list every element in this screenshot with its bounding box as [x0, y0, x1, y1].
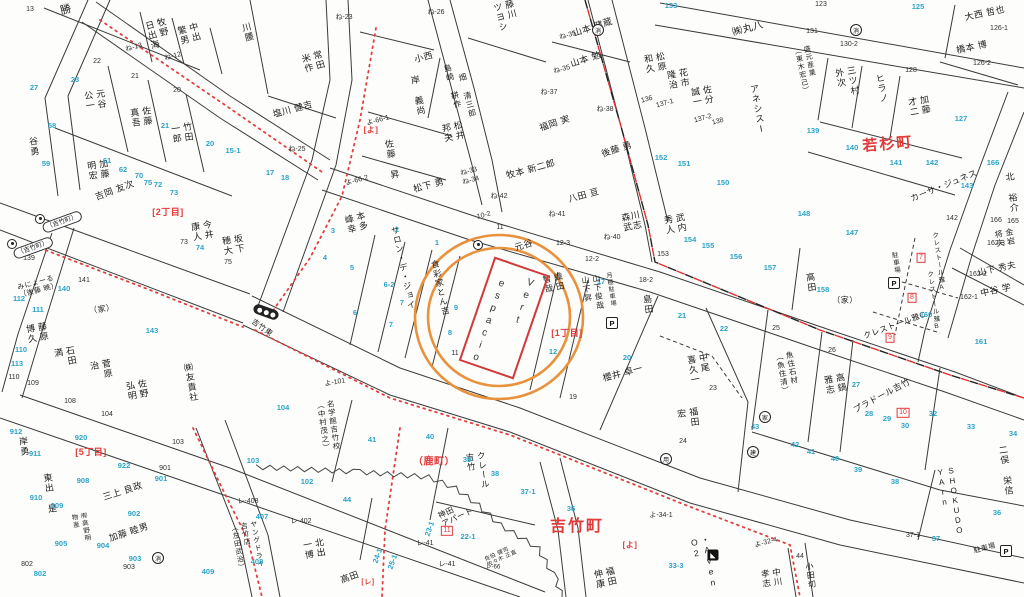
- parcel-number: 922: [118, 462, 131, 470]
- occupant-name: 中川孝志: [758, 567, 783, 589]
- parcel-line: [0, 418, 520, 597]
- parcel-number: 902: [128, 510, 141, 518]
- parcel-number: 911: [29, 450, 41, 458]
- name-column: 藤原: [35, 321, 48, 342]
- occupant-name: 今井康人: [188, 219, 215, 243]
- parcel-number: 903: [129, 555, 142, 563]
- parcel-number: 27: [30, 84, 38, 92]
- parcel-number: 24: [679, 438, 687, 446]
- name-column: 佐野: [135, 378, 148, 399]
- parcel-number: 72: [154, 181, 162, 189]
- parcel-number: 155: [702, 242, 715, 250]
- parcel-number: 908: [77, 477, 90, 485]
- parcel-line: [360, 498, 372, 560]
- parcel-number: 904: [97, 542, 110, 550]
- parcel-number: 22: [93, 58, 101, 66]
- parcel-number: 22: [720, 325, 728, 333]
- parcel-number: 44: [343, 496, 351, 504]
- name-column: 石田: [63, 345, 76, 366]
- parcel-number: 73: [180, 239, 188, 247]
- parcel-number: 33: [967, 423, 975, 431]
- name-column: 菅原: [99, 358, 112, 379]
- parcel-number: 141: [78, 277, 90, 285]
- district-label: [2丁目]: [152, 208, 184, 218]
- landmark-icon: ◣: [708, 550, 719, 561]
- boundary-dotted-line: [272, 28, 376, 312]
- parking-icon: P: [1000, 545, 1012, 557]
- parcel-number: 126-1: [990, 25, 1008, 33]
- red-number-box: 8: [908, 293, 917, 303]
- parcel-line: [350, 235, 375, 345]
- name-column: 松原: [653, 51, 666, 72]
- parcel-number: 166: [987, 159, 1000, 167]
- parcel-number: 110: [8, 374, 19, 382]
- parcel-line: [792, 248, 800, 310]
- parcel-number: 29: [883, 415, 891, 423]
- occupant-name: 藤原博久: [23, 321, 50, 345]
- occupant-name: （家）: [832, 297, 858, 306]
- boundary-dotted-line: [40, 248, 243, 327]
- parking-icon: P: [888, 277, 900, 289]
- parcel-number: 111: [32, 306, 44, 314]
- parcel-number: 75: [224, 259, 232, 267]
- parcel-number: ね-26: [427, 9, 444, 17]
- district-label: [よ]: [623, 542, 638, 551]
- parcel-number: 130-2: [840, 41, 858, 49]
- parcel-line: [210, 28, 222, 74]
- parcel-number: 142: [946, 215, 958, 223]
- parcel-number: 158: [817, 286, 830, 294]
- district-label: [5丁目]: [75, 448, 107, 458]
- name-column: 坂下: [231, 233, 244, 254]
- occupant-name: 北出一博: [300, 537, 327, 561]
- name-column: 元谷: [94, 89, 107, 110]
- parcel-number: 7: [400, 299, 404, 307]
- occupant-name: 菅原治: [87, 358, 114, 382]
- parcel-number: ね-38: [596, 106, 613, 114]
- circled-kanji-icon: 家: [759, 411, 771, 423]
- name-column: 北出: [312, 537, 325, 558]
- map-symbol-icon: [35, 214, 45, 224]
- parcel-line: [706, 308, 748, 492]
- parcel-line: [468, 38, 546, 62]
- name-column: 岸勇: [17, 436, 30, 457]
- name-column: 公一: [82, 90, 95, 111]
- parcel-number: 5: [350, 264, 354, 272]
- parcel-line: [840, 340, 853, 452]
- parcel-number: 1: [435, 239, 439, 247]
- parcel-number: 27: [852, 381, 860, 389]
- parcel-number: 44: [796, 553, 804, 561]
- parcel-number: 17: [266, 169, 274, 177]
- parcel-number: 147: [846, 229, 859, 237]
- circled-kanji-icon: 建: [747, 446, 759, 458]
- name-column: 弘明: [124, 380, 137, 401]
- parcel-number: 920: [75, 434, 88, 442]
- parcel-number: よ-34-1: [649, 512, 672, 520]
- parcel-number: 11: [451, 350, 458, 358]
- name-column: 高鍋: [833, 372, 846, 393]
- parcel-line: [362, 156, 446, 180]
- parcel-number: 19: [569, 394, 577, 402]
- circled-kanji-icon: 消: [850, 24, 862, 36]
- parcel-number: 161: [975, 338, 988, 346]
- parcel-number: 11: [496, 224, 503, 232]
- name-column: 佐分: [700, 84, 713, 105]
- occupant-name: 佐野弘明: [123, 378, 150, 402]
- parcel-number: 23: [709, 385, 717, 393]
- name-column: 孝志: [759, 569, 771, 589]
- parcel-number: 43: [751, 423, 759, 431]
- parcel-number: 62: [119, 166, 127, 174]
- parcel-number: 12: [549, 348, 557, 356]
- parcel-number: レ-66: [486, 565, 501, 572]
- name-column: 明宏: [85, 160, 98, 181]
- parcel-number: 113: [11, 360, 23, 368]
- parcel-number: 408: [251, 558, 264, 566]
- parcel-line: [890, 76, 900, 138]
- parcel-number: 12-2: [585, 256, 599, 264]
- circled-kanji-icon: 消: [592, 24, 604, 36]
- parcel-number: 910: [30, 494, 43, 502]
- name-column: 真吾: [128, 107, 141, 128]
- name-column: 加藤: [917, 94, 930, 115]
- parcel-number: 901: [155, 475, 168, 483]
- parcel-number: 13: [26, 6, 34, 14]
- name-column: 駐車場: [890, 251, 900, 274]
- parcel-number: 901: [159, 465, 171, 473]
- parking-icon: P: [606, 317, 618, 329]
- parcel-number: 6-2: [384, 281, 395, 289]
- parcel-number: 59: [42, 160, 50, 168]
- map-symbol-icon: [7, 239, 17, 249]
- parcel-number: 125: [912, 3, 925, 11]
- parcel-number: 166: [990, 217, 1002, 225]
- parcel-number: 23: [71, 76, 79, 84]
- parcel-number: 802: [34, 570, 47, 578]
- parcel-number: 73: [170, 189, 178, 197]
- parcel-number: 162-2: [969, 271, 987, 279]
- parcel-number: 104: [277, 404, 290, 412]
- parcel-line: [918, 470, 935, 540]
- parcel-number: 165: [1007, 218, 1019, 226]
- parcel-number: 21: [131, 73, 139, 81]
- red-number-box: 10: [897, 408, 910, 418]
- occupant-name: 元谷公一: [81, 88, 107, 111]
- name-column: 谷勇: [27, 136, 40, 157]
- parcel-number: 912: [10, 428, 23, 436]
- parcel-number: 110: [15, 346, 27, 354]
- name-column: 中川: [771, 567, 783, 587]
- parcel-number: 2: [395, 226, 399, 234]
- parcel-line: [612, 0, 668, 222]
- name-column: 宏: [675, 408, 686, 419]
- name-column: 物産: [69, 513, 79, 529]
- parcel-number: 38: [491, 470, 499, 478]
- parcel-number: 20: [173, 87, 181, 95]
- occupant-name: 加藤才二: [905, 94, 932, 118]
- circled-kanji-icon: 用: [660, 453, 672, 465]
- district-label: 吉竹町: [550, 518, 604, 536]
- parcel-number: 28: [865, 410, 873, 418]
- name-column: 才二: [906, 96, 919, 117]
- parcel-number: レ-402: [290, 518, 311, 526]
- parcel-number: 74: [196, 244, 204, 252]
- parcel-number: 802: [21, 561, 33, 569]
- red-number-box: 7: [917, 253, 926, 263]
- name-column: 満: [52, 347, 63, 359]
- circled-kanji-icon: 消: [152, 552, 164, 564]
- name-column: 秀人: [662, 214, 675, 235]
- parcel-number: 26: [828, 347, 836, 355]
- name-column: 一博: [301, 539, 314, 560]
- parcel-number: 18: [281, 174, 289, 182]
- red-number-box: 11: [441, 526, 453, 536]
- occupant-name: 高鍋雅志: [821, 372, 848, 396]
- parcel-number: 18-2: [639, 277, 653, 285]
- parcel-line: [430, 428, 448, 520]
- parcel-number: 909: [51, 502, 64, 510]
- parcel-number: 21: [678, 312, 686, 320]
- occupant-name: 森川武志: [621, 210, 644, 233]
- parcel-line: [108, 66, 128, 152]
- parcel-number: 154: [684, 236, 697, 244]
- parcel-number: 40: [426, 433, 434, 441]
- name-column: 武内: [673, 212, 686, 233]
- parcel-number: 70: [135, 172, 143, 180]
- parcel-number: 36: [993, 509, 1001, 517]
- parcel-number: 36: [567, 505, 575, 513]
- parcel-number: 133: [665, 2, 678, 10]
- occupant-name: 武内秀人: [661, 212, 688, 236]
- parcel-number: 139: [807, 127, 820, 135]
- parcel-number: ね-23: [335, 14, 352, 22]
- parcel-number: ね-42: [490, 193, 507, 201]
- parcel-number: 37: [932, 535, 940, 543]
- parcel-number: 141: [890, 159, 903, 167]
- parcel-number: 75: [144, 179, 152, 187]
- district-label: （鹿町）: [413, 457, 455, 468]
- parcel-number: 148: [798, 210, 811, 218]
- name-column: 福田: [687, 407, 700, 428]
- name-column: 竹田: [181, 122, 194, 143]
- parcel-number: レ-41: [438, 561, 455, 569]
- parcel-number: 131: [806, 28, 818, 36]
- name-column: 隆治: [665, 69, 678, 90]
- parcel-number: 34: [1009, 430, 1017, 438]
- name-column: 博久: [24, 323, 37, 344]
- occupant-name: 福田宏: [674, 406, 700, 429]
- building-name-column: Vert: [510, 276, 537, 329]
- parcel-number: 33-3: [668, 562, 683, 570]
- parcel-number: 152: [655, 154, 668, 162]
- parcel-number: ね-41: [548, 211, 565, 219]
- district-label: [1丁目]: [551, 329, 583, 339]
- parcel-number: ね-37: [540, 89, 557, 97]
- name-column: 今井: [200, 219, 213, 240]
- parcel-number: 140: [846, 144, 859, 152]
- parcel-number: 151: [678, 160, 691, 168]
- parcel-number: 160: [920, 311, 933, 319]
- occupant-name: 佐分誠一: [688, 84, 715, 108]
- parcel-number: 126-2: [973, 60, 991, 68]
- occupant-name: 佐藤真吾: [127, 105, 153, 128]
- occupant-name: 坂下穂大: [219, 233, 246, 257]
- parcel-line: [225, 420, 280, 597]
- parcel-number: 108: [64, 398, 76, 406]
- parcel-number: 143: [146, 327, 159, 335]
- parcel-number: 109: [27, 380, 39, 388]
- district-label: [レ]: [361, 579, 374, 587]
- parcel-number: 32: [929, 410, 937, 418]
- boundary-dotted-line: [382, 428, 400, 597]
- name-column: 雅志: [822, 374, 835, 395]
- parcel-number: 903: [123, 564, 135, 572]
- parcel-number: 162-3: [987, 240, 1005, 248]
- parcel-number: 20: [623, 354, 631, 362]
- name-column: 一郎: [169, 123, 182, 144]
- name-column: 金岩: [1003, 227, 1015, 246]
- parcel-number: 157: [764, 264, 777, 272]
- parcel-number: 61: [103, 157, 111, 165]
- parcel-number: 40: [831, 455, 839, 463]
- name-column: 高田: [804, 272, 817, 293]
- parcel-number: 25: [772, 325, 780, 333]
- parcel-line: [588, 0, 652, 262]
- parcel-number: 103: [172, 439, 184, 447]
- parcel-number: 6: [353, 309, 357, 317]
- parcel-number: 407: [256, 513, 269, 521]
- parcel-number: 140: [58, 285, 71, 293]
- parcel-number: 37-1: [520, 488, 535, 496]
- parcel-number: 103: [247, 457, 260, 465]
- parcel-number: 123: [815, 1, 827, 9]
- parcel-number: 42: [791, 441, 799, 449]
- parcel-line: [20, 395, 545, 592]
- occupant-name: 中尾喜久一: [684, 352, 713, 386]
- occupant-name: 三ツ村外次: [832, 65, 861, 99]
- parcel-number: レ-41: [416, 540, 433, 548]
- name-column: 花市: [676, 67, 689, 88]
- parcel-number: 12-3: [556, 240, 570, 248]
- red-number-box: 9: [886, 333, 895, 343]
- parcel-number: 15-1: [225, 147, 240, 155]
- parcel-line: [945, 5, 955, 58]
- name-column: 穂大: [220, 235, 233, 256]
- name-column: 中尾: [696, 352, 709, 373]
- parcel-line: [96, 2, 330, 160]
- occupant-name: 竹田一郎: [168, 121, 194, 144]
- parcel-line: [428, 58, 440, 118]
- parcel-number: 41: [368, 436, 376, 444]
- occupant-name: 石田満: [51, 345, 78, 369]
- parcel-number: 153: [657, 251, 669, 259]
- parcel-number: 162-1: [960, 294, 978, 302]
- parcel-line: [360, 32, 434, 50]
- parcel-number: 8: [448, 329, 452, 337]
- parcel-line: [250, 0, 268, 94]
- parcel-number: 21: [161, 122, 169, 130]
- parcel-number: 39: [463, 456, 471, 464]
- parcel-number: 39: [854, 466, 862, 474]
- parcel-number: レ-408: [237, 498, 258, 506]
- parcel-number: 142: [926, 159, 939, 167]
- name-column: 康人: [189, 221, 202, 242]
- parcel-number: 104: [101, 411, 113, 419]
- parcel-number: 128: [905, 67, 917, 75]
- parcel-number: 156: [730, 253, 743, 261]
- parcel-number: 409: [202, 568, 215, 576]
- name-column: 島田: [641, 294, 654, 315]
- name-column: 誠一: [689, 86, 702, 107]
- parcel-number: 7: [389, 321, 393, 329]
- parcel-number: 22-1: [460, 533, 475, 541]
- district-label: [よ]: [364, 127, 379, 136]
- parcel-number: 127: [955, 115, 968, 123]
- parcel-number: 150: [717, 179, 730, 187]
- parcel-number: 30: [901, 422, 909, 430]
- parcel-number: 38: [891, 478, 899, 486]
- parcel-number: 4: [323, 254, 327, 262]
- name-column: 外次: [833, 67, 846, 88]
- parcel-line: [925, 368, 940, 470]
- name-column: 治: [88, 360, 99, 372]
- map-symbol-icon: [473, 240, 483, 250]
- parcel-number: ね-40: [603, 234, 620, 242]
- parcel-line: [283, 0, 352, 312]
- parcel-number: 20: [206, 140, 214, 148]
- parcel-number: 112: [13, 295, 25, 303]
- parcel-number: 58: [48, 122, 56, 130]
- name-column: 和久: [642, 53, 655, 74]
- parcel-number: 9: [454, 304, 458, 312]
- parcel-number: 37-1: [906, 532, 920, 540]
- parcel-number: 102: [301, 478, 314, 486]
- map-canvas: 勝牧野日出海中出繁男川腰ね-13ね-12元谷公一佐藤真吾竹田一郎谷勇加藤明宏吉岡…: [0, 0, 1024, 597]
- parcel-number: 41: [807, 448, 815, 456]
- name-column: 佐藤: [140, 106, 153, 127]
- parcel-number: ね-25: [288, 146, 305, 154]
- parcel-number: 3: [331, 227, 335, 235]
- parcel-number: 905: [55, 540, 68, 548]
